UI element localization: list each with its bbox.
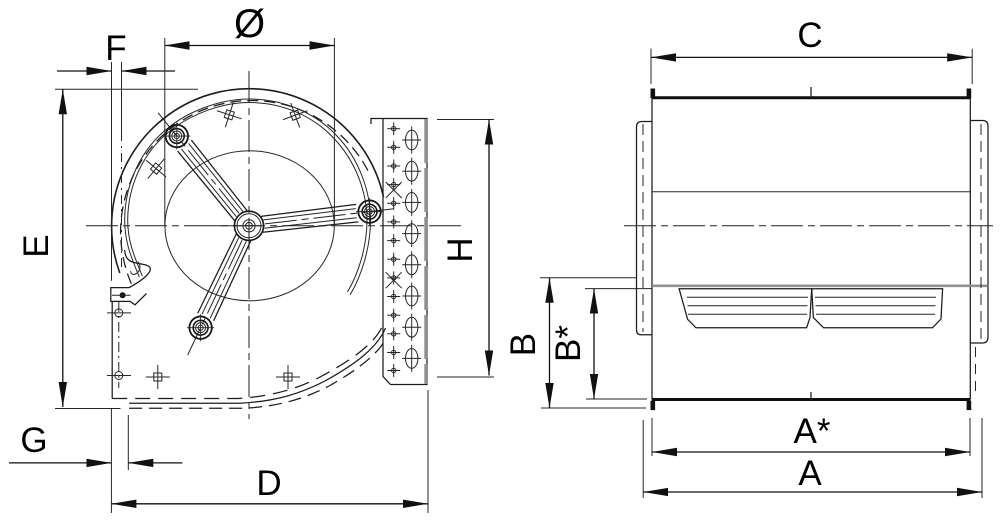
svg-text:C: C (797, 16, 822, 55)
svg-text:G: G (20, 421, 47, 460)
svg-text:A*: A* (794, 412, 831, 451)
svg-text:D: D (256, 464, 281, 503)
svg-text:E: E (17, 234, 56, 257)
svg-text:F: F (105, 29, 126, 68)
svg-text:A: A (798, 454, 822, 493)
svg-text:H: H (441, 237, 480, 262)
svg-text:B*: B* (549, 325, 588, 362)
svg-text:B: B (504, 333, 543, 356)
svg-text:Ø: Ø (234, 2, 265, 46)
